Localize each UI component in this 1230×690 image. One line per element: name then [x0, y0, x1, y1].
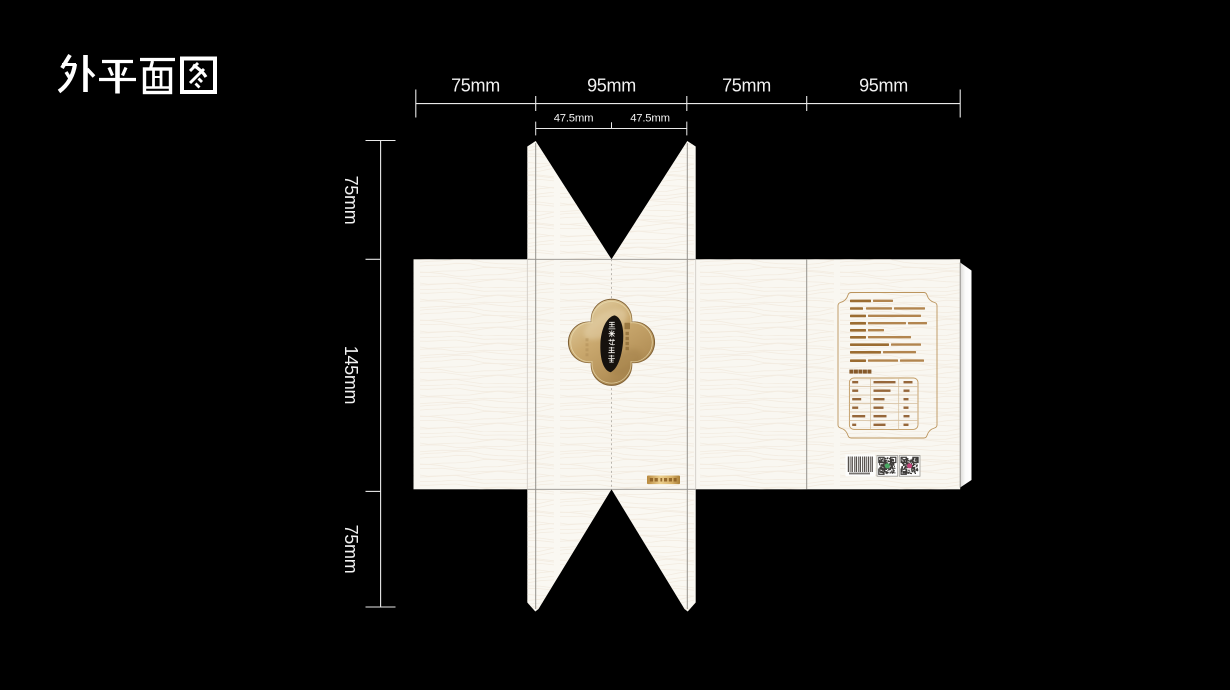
svg-text:75mm: 75mm	[451, 76, 500, 96]
svg-text:145mm: 145mm	[341, 346, 361, 405]
svg-text:75mm: 75mm	[341, 525, 361, 574]
svg-text:95mm: 95mm	[859, 76, 908, 96]
svg-text:47.5mm: 47.5mm	[554, 113, 594, 125]
svg-text:95mm: 95mm	[587, 76, 636, 96]
svg-text:75mm: 75mm	[341, 176, 361, 225]
svg-text:47.5mm: 47.5mm	[630, 113, 670, 125]
svg-text:75mm: 75mm	[722, 76, 771, 96]
